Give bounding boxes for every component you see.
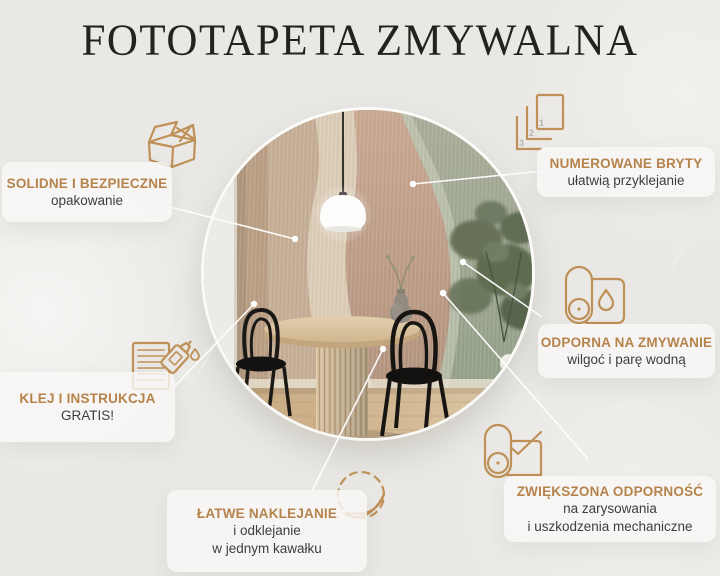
sheet-number-2: 2 (529, 128, 534, 138)
feature-card-glue-gratis: KLEJ I INSTRUKCJA GRATIS! (0, 372, 175, 442)
room-photo-circle (204, 110, 532, 438)
feature-title: ODPORNA NA ZMYWANIE (541, 334, 713, 351)
feature-subtitle: opakowanie (51, 192, 123, 209)
feature-subtitle: GRATIS! (61, 407, 114, 424)
page-title: FOTOTAPETA ZMYWALNA (0, 15, 720, 66)
light-streak (659, 213, 703, 293)
feature-subtitle: ułatwią przyklejanie (567, 172, 684, 189)
feature-card-numbered-panels: NUMEROWANE BRYTY ułatwią przyklejanie (537, 147, 715, 197)
feature-title: SOLIDNE I BEZPIECZNE (7, 175, 168, 192)
infographic: FOTOTAPETA ZMYWALNA (0, 0, 720, 576)
feature-title: ŁATWE NAKLEJANIE (197, 505, 337, 522)
sheet-number-3: 3 (519, 138, 524, 148)
feature-subtitle: na zarysowania (563, 500, 657, 517)
feature-subtitle: wilgoć i parę wodną (567, 351, 686, 368)
side-wall (204, 110, 246, 388)
feature-card-washable: ODPORNA NA ZMYWANIE wilgoć i parę wodną (538, 324, 715, 378)
feature-title: ZWIĘKSZONA ODPORNOŚĆ (517, 483, 704, 500)
feature-subtitle: i uszkodzenia mechaniczne (527, 518, 692, 535)
feature-card-durability: ZWIĘKSZONA ODPORNOŚĆ na zarysowania i us… (504, 476, 716, 542)
feature-subtitle: w jednym kawałku (212, 540, 322, 557)
feature-card-packaging: SOLIDNE I BEZPIECZNE opakowanie (2, 162, 172, 222)
dining-room-scene (204, 110, 532, 438)
roll-water-drop-icon (562, 265, 630, 327)
feature-title: KLEJ I INSTRUKCJA (19, 390, 155, 407)
numbered-sheets-icon: 3 2 1 (511, 93, 575, 155)
feature-subtitle: i odklejanie (233, 522, 301, 539)
sheet-number-1: 1 (539, 118, 544, 128)
feature-title: NUMEROWANE BRYTY (550, 155, 703, 172)
feature-card-easy-apply: ŁATWE NAKLEJANIE i odklejanie w jednym k… (167, 490, 367, 572)
roll-checkmark-icon (483, 423, 547, 481)
